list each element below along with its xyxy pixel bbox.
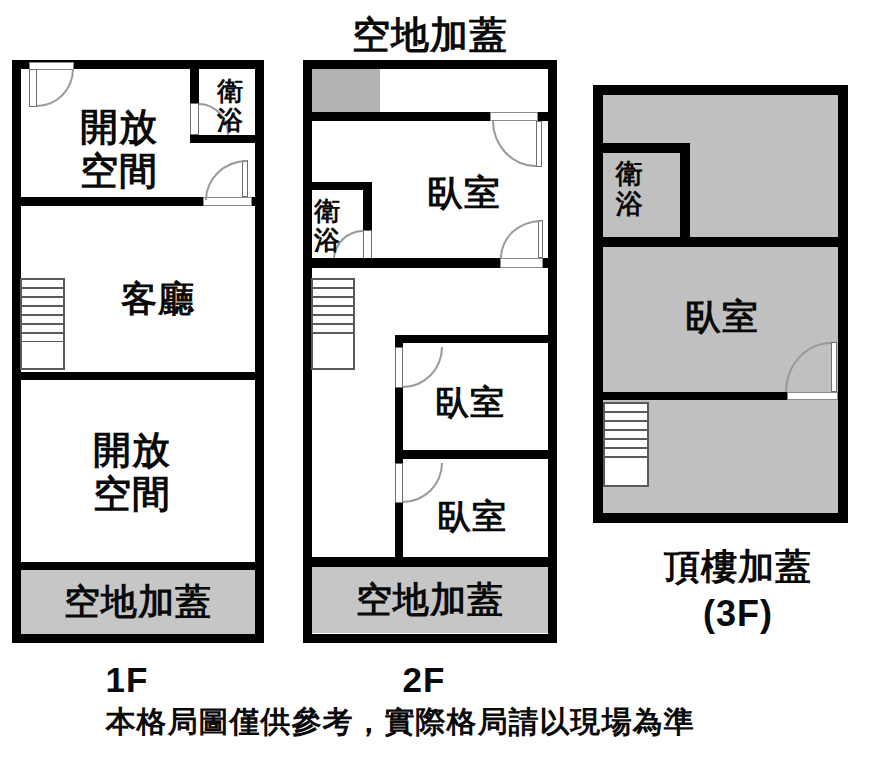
bathroom2-door-leaf bbox=[363, 230, 372, 260]
wall-strip-bedroom bbox=[312, 112, 490, 121]
floorplan-1f: 衛 浴 開放 空間 客廳 開放 空間 空地加蓋 bbox=[12, 60, 264, 643]
floor2-label: 2F bbox=[374, 660, 474, 700]
wall-above-patio bbox=[21, 562, 255, 570]
bedroom-mid-wall-top bbox=[395, 335, 548, 343]
bedroom3f-label: 臥室 bbox=[642, 293, 802, 342]
bedroom-top-door-threshold bbox=[490, 112, 538, 121]
bedroom3f-door-arc bbox=[785, 342, 831, 392]
bathroom3-label: 衛 浴 bbox=[613, 159, 645, 219]
wall-stub3 bbox=[543, 258, 548, 268]
living-room-label: 客廳 bbox=[78, 275, 238, 324]
patio-strip-2f: 空地加蓋 bbox=[312, 567, 548, 633]
bedroom3f-door-leaf bbox=[831, 342, 837, 392]
wall-openspace-living bbox=[21, 197, 203, 206]
bedroom-bottom-door-arc bbox=[500, 220, 541, 258]
floor2-roof-title: 空地加蓋 bbox=[308, 10, 552, 61]
stair-treads bbox=[313, 280, 353, 338]
floor3-label: 頂樓加蓋 (3F) bbox=[613, 543, 863, 637]
bedroom-top-label: 臥室 bbox=[384, 169, 544, 218]
stairs-1f bbox=[20, 278, 65, 370]
disclaimer-caption: 本格局圖僅供參考，實際格局請以現場為準 bbox=[30, 702, 770, 743]
open-space-top-label: 開放 空間 bbox=[39, 105, 199, 193]
stair-treads bbox=[22, 280, 63, 342]
patio-label-1f: 空地加蓋 bbox=[64, 578, 212, 627]
wall-stub2 bbox=[538, 112, 548, 121]
wall-top-bedroom bbox=[603, 237, 838, 247]
bathroom-label: 衛 浴 bbox=[213, 77, 247, 135]
wall-stub bbox=[252, 197, 255, 206]
bedroom-top-door-arc bbox=[492, 121, 536, 167]
patio-label-2f: 空地加蓋 bbox=[356, 576, 504, 625]
bathroom-wall-bottom bbox=[190, 135, 255, 143]
living-door-arc bbox=[205, 160, 247, 200]
stairs-2f bbox=[311, 278, 355, 370]
roof-strip-gray bbox=[312, 69, 380, 112]
bedroom-top-door-leaf bbox=[536, 121, 542, 167]
bathroom3-wall-right bbox=[680, 153, 690, 237]
patio-strip-1f: 空地加蓋 bbox=[21, 570, 255, 634]
wall-above-patio-2f bbox=[312, 557, 548, 567]
open-space-bottom-label: 開放 空間 bbox=[52, 428, 212, 516]
wall-living-openspace bbox=[21, 372, 255, 380]
stair-treads bbox=[605, 404, 647, 460]
entry-door-arc bbox=[37, 69, 74, 107]
floorplan-canvas: 空地加蓋 衛 浴 開放 空間 客廳 開放 空間 bbox=[0, 0, 889, 757]
bathroom3-wall-top bbox=[603, 143, 690, 153]
bedroom3f-door-threshold bbox=[787, 392, 838, 400]
bedroom-mid-label: 臥室 bbox=[390, 380, 550, 426]
floorplan-2f: 臥室 衛 浴 臥室 臥室 bbox=[303, 60, 557, 643]
wall-between-bedrooms bbox=[395, 450, 548, 459]
wall-bedroom-hall bbox=[312, 258, 500, 268]
bathroom2-label: 衛 浴 bbox=[312, 197, 342, 255]
entry-door-leaf bbox=[29, 69, 37, 107]
bedroom-bot-label: 臥室 bbox=[392, 494, 552, 540]
wall-bedroom-bottomarea bbox=[603, 392, 787, 400]
bathroom-wall-left bbox=[190, 69, 199, 103]
floor1-label: 1F bbox=[77, 660, 177, 700]
bathroom2-wall-right bbox=[363, 190, 372, 230]
stairs-3f bbox=[603, 402, 649, 487]
bedroom-bottom-door-threshold bbox=[500, 258, 543, 268]
floorplan-3f: 衛 浴 臥室 bbox=[593, 85, 848, 523]
bathroom2-wall-top bbox=[312, 182, 372, 190]
